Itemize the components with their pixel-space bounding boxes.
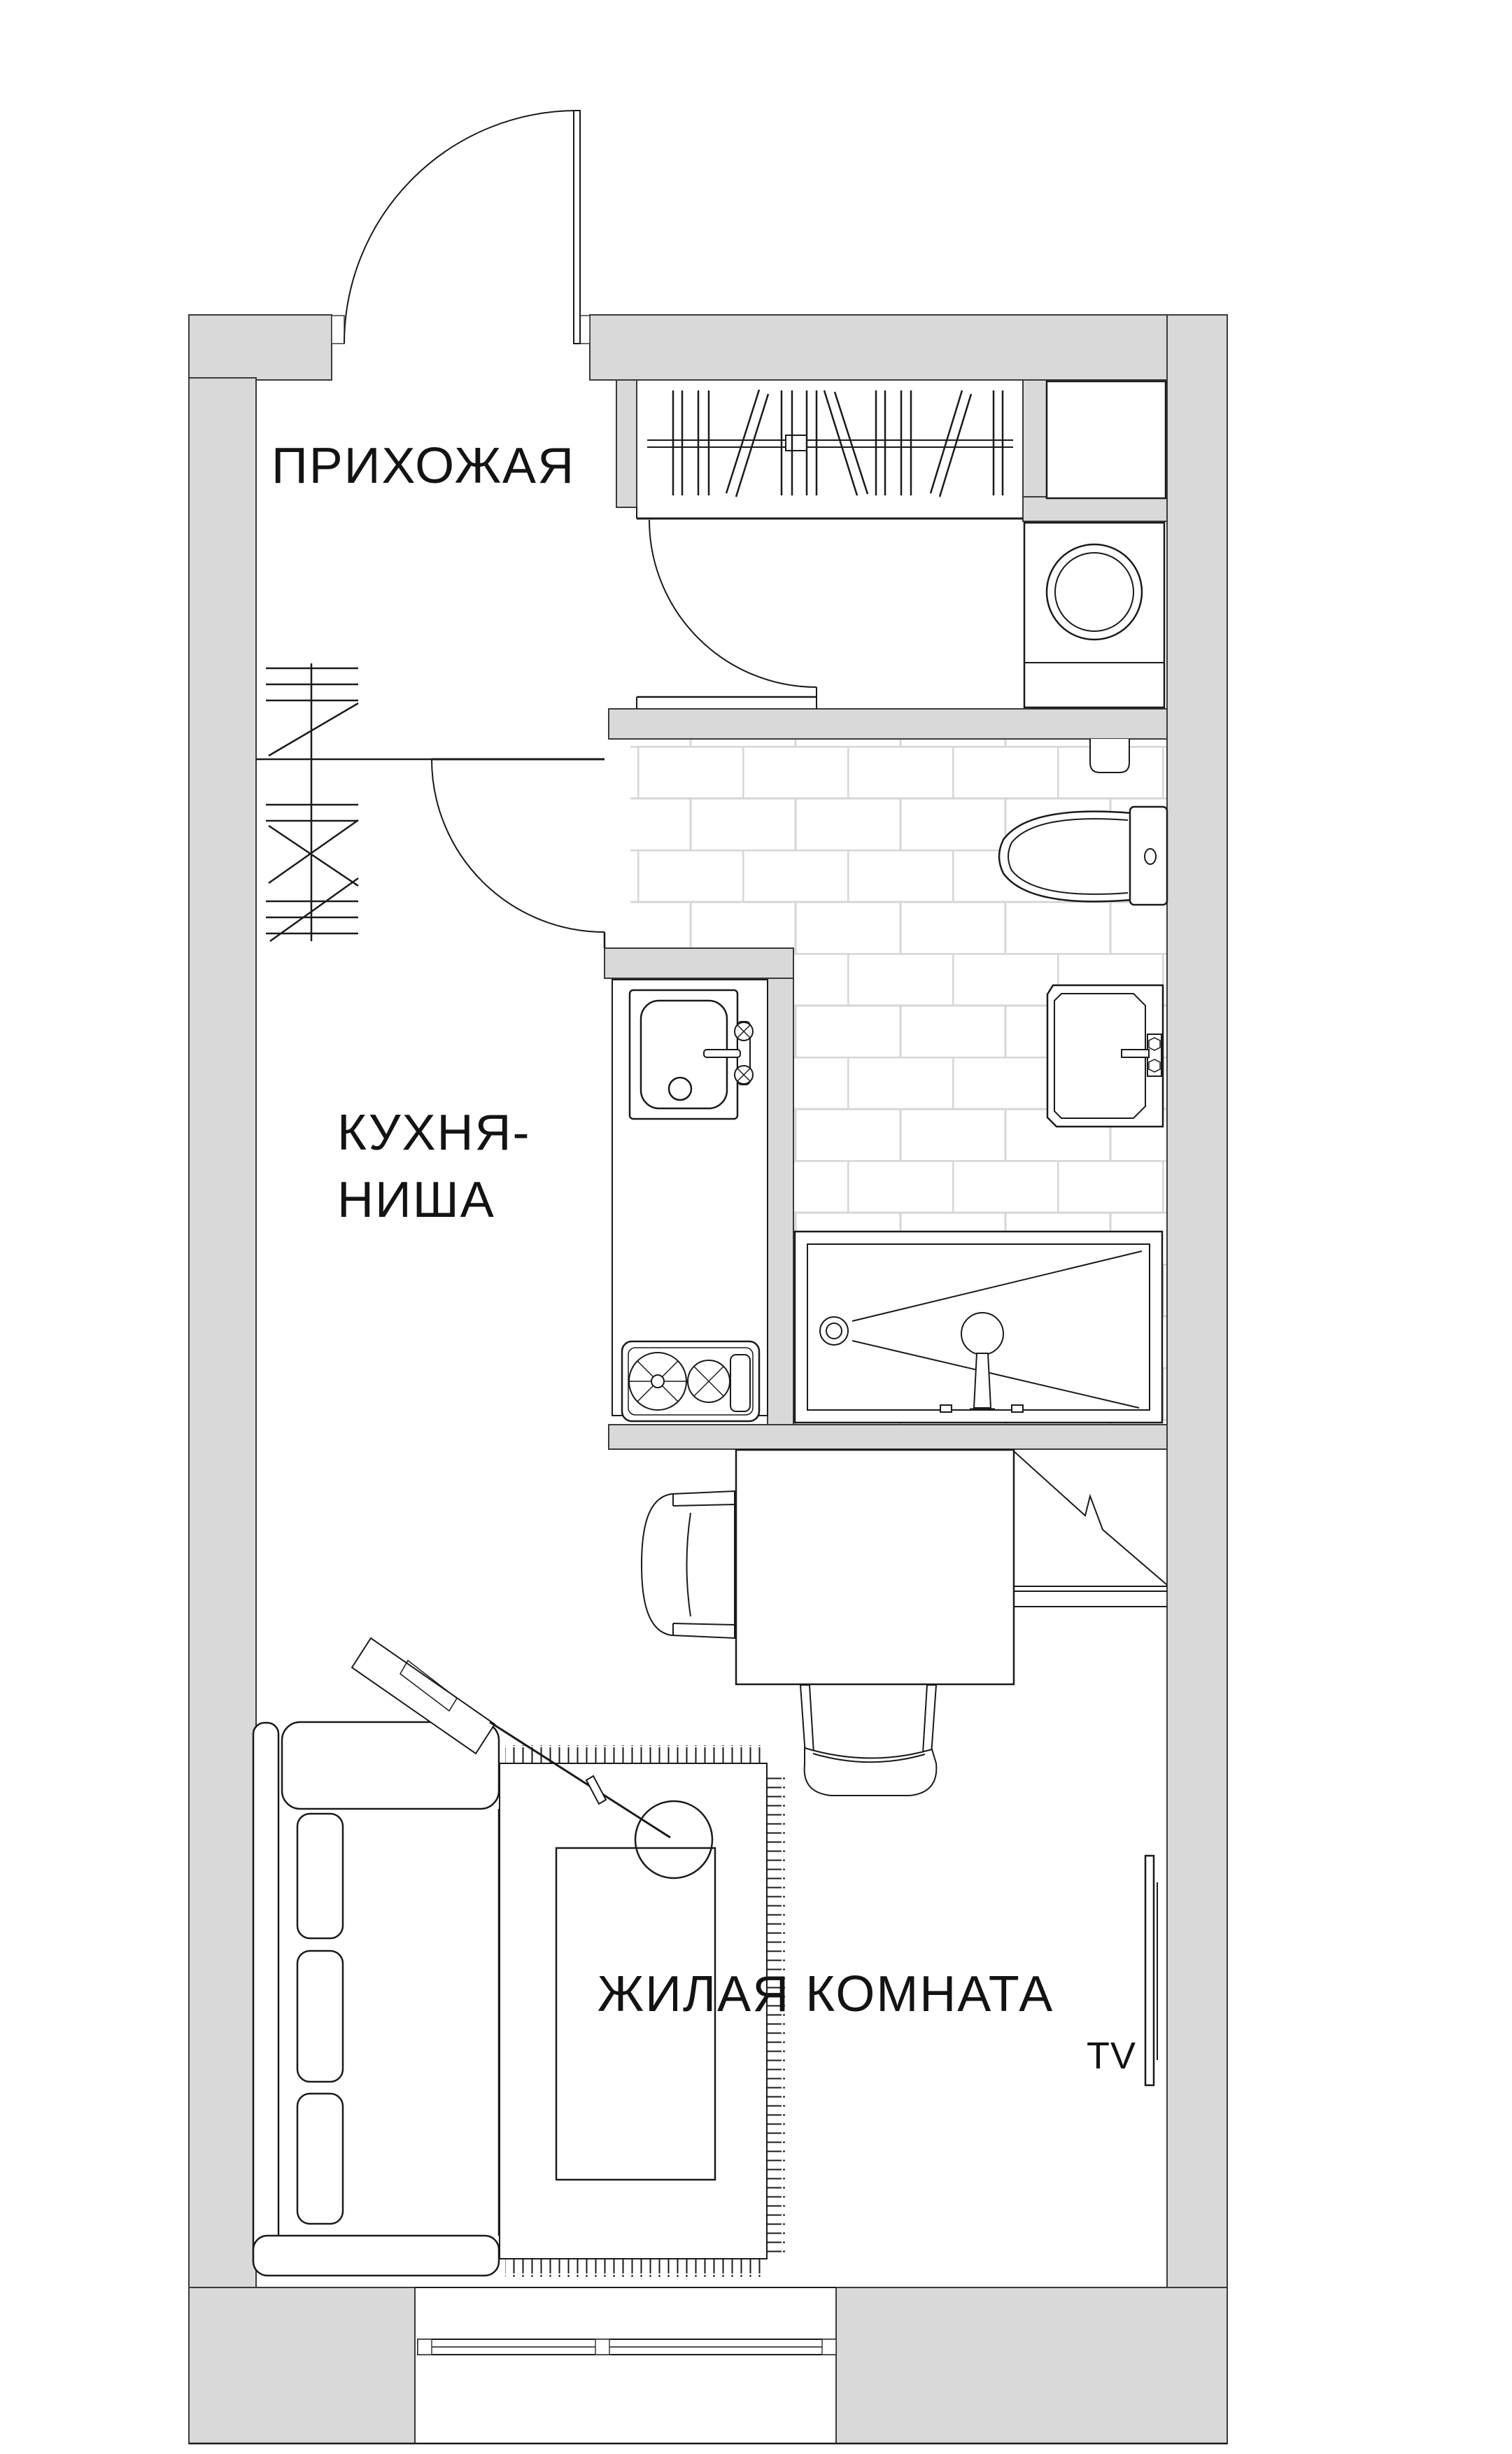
- bathtub-foot-left: [940, 1405, 952, 1412]
- wall-top-right: [590, 315, 1227, 380]
- sofa-armrest-bottom: [253, 2236, 499, 2276]
- kitchen-faucet-spout: [704, 1050, 740, 1057]
- washing-machine: [1024, 523, 1164, 707]
- room-label-living: ЖИЛАЯ КОМНАТА: [598, 1966, 1054, 2022]
- sofa-backrest: [253, 1723, 278, 2273]
- storage-closet: [1047, 381, 1166, 498]
- toilet-tank: [1130, 807, 1167, 905]
- burner-left-center: [651, 1375, 664, 1388]
- stove: [622, 1341, 759, 1421]
- window-mullion-center: [595, 2339, 609, 2355]
- shower-head: [961, 1313, 1003, 1355]
- tv-screen: [1145, 1856, 1154, 2085]
- bathroom-wall-top: [609, 709, 1167, 739]
- window: [418, 2339, 836, 2355]
- bathroom-wall-bottom: [609, 1425, 1167, 1449]
- wall-top-left: [189, 315, 332, 380]
- floor-plan-svg: ПРИХОЖАЯ КУХНЯ- НИША ЖИЛАЯ КОМНАТА TV: [0, 0, 1512, 2454]
- bathroom-wall-mid: [605, 948, 793, 978]
- wall-bottom-left: [189, 2287, 415, 2444]
- bathtub-foot-right: [1012, 1405, 1023, 1412]
- toilet-paper-holder: [1090, 739, 1129, 773]
- kitchen-sink: [630, 990, 753, 1119]
- kitchen-counter: [612, 980, 768, 1421]
- rug-fringe-top: [505, 1745, 764, 1763]
- wall-bottom-right: [836, 2287, 1227, 2444]
- stove-panel: [730, 1355, 750, 1411]
- chair-left: [642, 1491, 735, 1638]
- shower-bathtub: [795, 1232, 1162, 1423]
- dining-table: [736, 1450, 1014, 1684]
- sofa-cushion-1: [297, 1814, 343, 1938]
- window-mullion-left: [418, 2339, 432, 2355]
- room-label-kitchen-line2: НИША: [337, 1172, 495, 1228]
- floor-plan-page: ПРИХОЖАЯ КУХНЯ- НИША ЖИЛАЯ КОМНАТА TV: [0, 0, 1512, 2454]
- sink-faucet-spout: [1122, 1050, 1149, 1057]
- shower-stand: [974, 1353, 991, 1408]
- wardrobe-pilaster: [616, 380, 637, 507]
- entrance-door-leaf: [574, 111, 580, 344]
- entrance-jamb-left: [332, 316, 344, 344]
- wall-sink: [1047, 985, 1163, 1127]
- sofa-cushion-2: [297, 1951, 343, 2082]
- wardrobe-rod-bracket: [786, 435, 807, 451]
- room-label-kitchen-line1: КУХНЯ-: [337, 1105, 530, 1161]
- wall-left: [189, 378, 256, 2290]
- rug-fringe-bottom: [505, 2259, 764, 2277]
- room-label-hallway: ПРИХОЖАЯ: [271, 438, 575, 494]
- window-mullion-right: [822, 2339, 836, 2355]
- washing-machine-body: [1024, 523, 1164, 707]
- niche-wall-band: [1023, 497, 1167, 521]
- bathroom-wall-vertical: [768, 978, 793, 1425]
- tv-label: TV: [1087, 2035, 1136, 2077]
- wall-right: [1167, 315, 1227, 2444]
- chair-left-body: [642, 1491, 735, 1638]
- sofa-cushion-3: [297, 2094, 343, 2224]
- toilet-bowl-outer: [999, 812, 1131, 902]
